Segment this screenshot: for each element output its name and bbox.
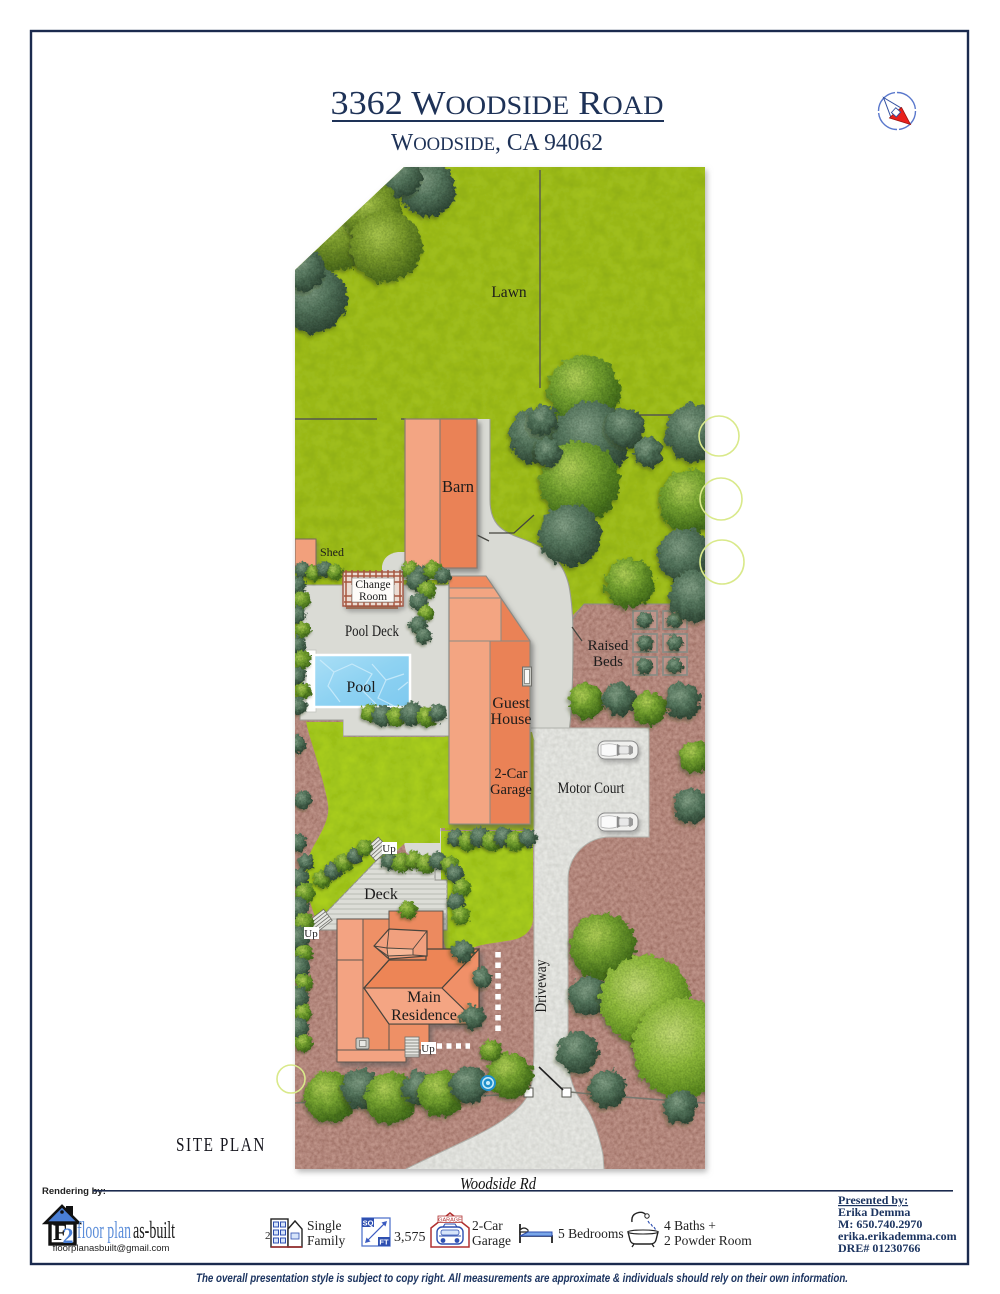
svg-text:House: House bbox=[491, 711, 532, 728]
svg-text:3,575: 3,575 bbox=[394, 1230, 426, 1245]
svg-text:Up: Up bbox=[382, 843, 396, 855]
svg-text:Residence: Residence bbox=[391, 1007, 457, 1024]
svg-text:Up: Up bbox=[304, 928, 318, 940]
svg-text:Room: Room bbox=[359, 591, 387, 603]
svg-text:GARAGE: GARAGE bbox=[438, 1218, 462, 1224]
svg-text:Pool Deck: Pool Deck bbox=[345, 623, 399, 640]
svg-text:as-built: as-built bbox=[133, 1218, 175, 1244]
svg-text:F: F bbox=[53, 1220, 67, 1245]
svg-text:Driveway: Driveway bbox=[533, 960, 550, 1013]
svg-text:Motor Court: Motor Court bbox=[558, 780, 625, 797]
svg-text:Up: Up bbox=[421, 1043, 435, 1055]
svg-text:4 Baths +: 4 Baths + bbox=[664, 1218, 716, 1233]
svg-text:Change: Change bbox=[355, 579, 390, 591]
svg-text:2-Car: 2-Car bbox=[494, 766, 527, 782]
svg-text:SQ: SQ bbox=[363, 1219, 374, 1228]
svg-text:2-Car: 2-Car bbox=[472, 1218, 503, 1233]
svg-text:3362 WOODSIDE ROAD: 3362 WOODSIDE ROAD bbox=[331, 85, 664, 122]
svg-text:Main: Main bbox=[407, 989, 441, 1006]
svg-text:Guest: Guest bbox=[492, 695, 530, 712]
svg-text:DRE# 01230766: DRE# 01230766 bbox=[838, 1241, 920, 1255]
svg-text:Pool: Pool bbox=[346, 679, 376, 696]
svg-text:Single: Single bbox=[307, 1218, 342, 1233]
svg-text:FT: FT bbox=[379, 1238, 389, 1247]
svg-text:SITE PLAN: SITE PLAN bbox=[176, 1135, 266, 1156]
svg-text:2: 2 bbox=[265, 1230, 271, 1242]
svg-text:Barn: Barn bbox=[442, 477, 474, 496]
svg-text:Family: Family bbox=[307, 1233, 346, 1248]
svg-text:Lawn: Lawn bbox=[491, 284, 527, 301]
svg-text:2 Powder Room: 2 Powder Room bbox=[664, 1233, 752, 1248]
svg-text:5 Bedrooms: 5 Bedrooms bbox=[558, 1226, 624, 1241]
svg-text:Beds: Beds bbox=[593, 654, 623, 670]
svg-text:floorplanasbuilt@gmail.com: floorplanasbuilt@gmail.com bbox=[53, 1243, 170, 1254]
svg-text:Garage: Garage bbox=[472, 1233, 511, 1248]
svg-text:floor plan: floor plan bbox=[77, 1218, 131, 1244]
svg-text:The overall presentation style: The overall presentation style is subjec… bbox=[196, 1273, 848, 1285]
svg-text:Raised: Raised bbox=[588, 638, 629, 654]
svg-text:Shed: Shed bbox=[320, 545, 344, 559]
svg-text:WOODSIDE, CA 94062: WOODSIDE, CA 94062 bbox=[391, 130, 603, 156]
svg-text:Garage: Garage bbox=[490, 782, 532, 798]
svg-text:Deck: Deck bbox=[364, 886, 398, 903]
